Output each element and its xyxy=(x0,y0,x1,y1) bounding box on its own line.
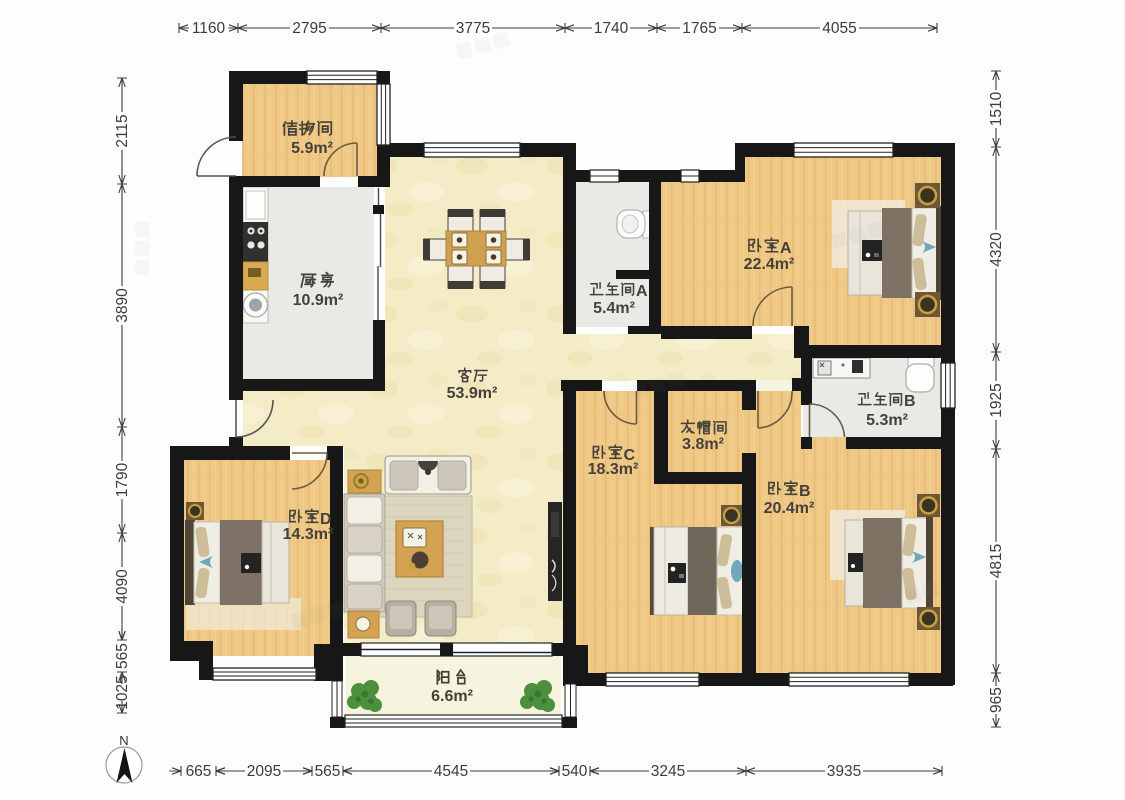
svg-text:1510: 1510 xyxy=(988,91,1005,126)
svg-text:A: A xyxy=(780,240,792,257)
svg-text:3245: 3245 xyxy=(651,763,685,780)
svg-text:3.8m²: 3.8m² xyxy=(682,436,724,453)
svg-text:5.4m²: 5.4m² xyxy=(593,300,635,317)
svg-text:2095: 2095 xyxy=(247,763,281,780)
svg-text:4055: 4055 xyxy=(822,20,856,37)
svg-text:2795: 2795 xyxy=(292,20,326,37)
svg-text:A: A xyxy=(636,283,648,300)
svg-text:1790: 1790 xyxy=(114,462,131,497)
svg-text:565: 565 xyxy=(315,763,341,780)
svg-text:1025: 1025 xyxy=(114,675,131,709)
svg-text:10.9m²: 10.9m² xyxy=(293,292,344,309)
svg-text:1765: 1765 xyxy=(682,20,716,37)
svg-text:5.3m²: 5.3m² xyxy=(866,412,908,429)
svg-text:3935: 3935 xyxy=(827,763,861,780)
svg-text:B: B xyxy=(799,483,811,500)
svg-text:1160: 1160 xyxy=(192,20,226,37)
svg-text:3890: 3890 xyxy=(114,288,131,323)
svg-text:540: 540 xyxy=(562,763,588,780)
svg-text:22.4m²: 22.4m² xyxy=(744,256,795,273)
svg-text:3775: 3775 xyxy=(456,20,490,37)
svg-text:565: 565 xyxy=(114,643,131,669)
svg-text:18.3m²: 18.3m² xyxy=(588,461,639,478)
svg-text:1925: 1925 xyxy=(988,383,1005,417)
svg-text:4090: 4090 xyxy=(114,569,131,604)
svg-text:965: 965 xyxy=(988,687,1005,713)
svg-text:N: N xyxy=(119,733,128,748)
svg-text:1740: 1740 xyxy=(594,20,629,37)
svg-text:53.9m²: 53.9m² xyxy=(447,385,498,402)
svg-text:14.3m²: 14.3m² xyxy=(283,526,334,543)
svg-text:4320: 4320 xyxy=(988,232,1005,267)
svg-text:B: B xyxy=(904,393,916,410)
svg-text:20.4m²: 20.4m² xyxy=(764,500,815,517)
svg-text:4815: 4815 xyxy=(988,544,1005,578)
svg-text:4545: 4545 xyxy=(434,763,468,780)
svg-text:665: 665 xyxy=(186,763,212,780)
svg-text:6.6m²: 6.6m² xyxy=(431,688,473,705)
svg-text:2115: 2115 xyxy=(114,114,131,147)
svg-text:5.9m²: 5.9m² xyxy=(291,140,333,157)
